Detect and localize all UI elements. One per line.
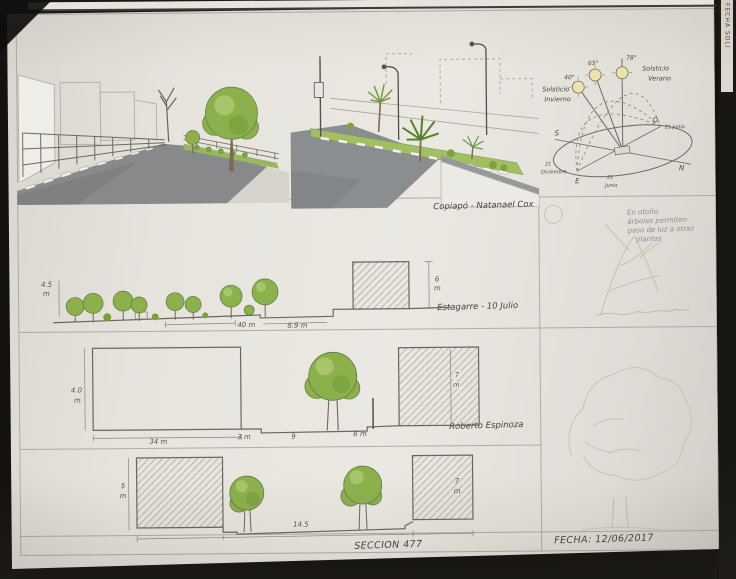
s1-height-right-value: 6	[435, 275, 440, 283]
angle-mid-label: 65°	[588, 60, 599, 67]
s1-road-width: 8.9 m	[287, 322, 307, 330]
s1-trees-width: 40 m	[237, 321, 255, 329]
solsticio-verano-line2: Verano	[648, 74, 671, 82]
building-block-right	[353, 262, 409, 309]
adjacent-sheet-edge: FECHA SOLI	[721, 0, 733, 92]
author-note-copiapo: Copiapó - Natanael Cox	[433, 200, 534, 213]
sun-path-diagram: 40° 65° 78° Solsticio Invierno Solsticio…	[538, 42, 719, 196]
street-section-1: 4.5 m 40 m 8.9 m 6 m	[35, 247, 476, 343]
s1-height-left-unit: m	[43, 290, 50, 298]
s2-block-width: 34 m	[149, 438, 167, 446]
cardinal-west: O	[653, 116, 659, 124]
faint-scribble-line	[595, 309, 689, 316]
s3-height-right-value: 7	[455, 477, 460, 485]
lamp-post-right	[469, 42, 486, 136]
s2-walk-width: 8 m	[353, 430, 367, 438]
building-block-left	[136, 457, 223, 528]
sheet-title-seccion: SECCION 477	[354, 539, 423, 552]
s3-road-width: 14.5	[293, 521, 309, 529]
date-south-line2: Diciembre	[541, 169, 567, 175]
lamp-post-middle	[382, 64, 399, 140]
ground-line	[241, 426, 399, 433]
pencil-sketches-right-column	[539, 195, 718, 537]
faint-bare-tree-sketch	[599, 223, 662, 316]
s2-height-left-unit: m	[74, 397, 81, 405]
s2-height-right-value: 7	[455, 371, 460, 379]
sun-mid-icon	[585, 65, 605, 85]
sheet-date-fecha: FECHA: 12/06/2017	[554, 532, 654, 546]
s2-height-right-unit: m	[453, 381, 460, 389]
cardinal-east: E	[575, 177, 580, 185]
perspective-sketch-median	[290, 39, 539, 209]
adjacent-sheet-vertical-text: FECHA SOLI	[724, 3, 731, 92]
perspective-sketch-street	[16, 43, 292, 205]
solsticio-verano-line1: Solsticio	[642, 64, 669, 72]
sun-path-arcs	[575, 93, 661, 171]
building-block-left	[93, 347, 242, 430]
street-sign	[314, 82, 323, 97]
section3-tree-left	[230, 476, 264, 532]
dashed-building-outlines	[386, 53, 532, 104]
house-footprint	[614, 146, 630, 155]
date-east-line2: Junio	[604, 183, 617, 189]
s2-gap-width: 3 m	[237, 433, 251, 441]
cardinal-north: N	[679, 164, 685, 172]
cardinal-south: S	[555, 129, 560, 137]
s2-height-left-value: 4.0	[71, 386, 83, 394]
section3-tree-right	[341, 466, 383, 530]
s3-height-left-unit: m	[120, 492, 127, 500]
faint-tree-outline-sketch	[568, 367, 692, 530]
building-block-right	[399, 347, 480, 426]
s2-median-width: 9	[291, 433, 296, 441]
date-west-label: 21 Junio	[665, 124, 685, 130]
drawing-sheet: 40° 65° 78° Solsticio Invierno Solsticio…	[0, 0, 736, 579]
ground-line	[223, 522, 413, 535]
section2-dimensions	[85, 345, 452, 441]
angle-summer-label: 78°	[626, 55, 637, 62]
street-section-2: 34 m 3 m 9 8 m 4.0 m 7 m	[60, 337, 481, 449]
date-east-line1: 21	[607, 175, 613, 181]
s1-height-left-value: 4.5	[41, 281, 53, 289]
section2-tree	[305, 352, 361, 430]
date-south-line1: 21	[545, 161, 551, 167]
s3-height-left-value: 5	[121, 482, 126, 490]
lamp-post-left	[314, 56, 324, 136]
sun-summer-icon	[612, 63, 632, 83]
street-section-3: 14.5 5 m 7 m	[106, 449, 477, 544]
solsticio-invierno-line1: Solsticio	[542, 85, 569, 93]
faint-circle-sketch	[544, 205, 562, 223]
s1-height-right-unit: m	[434, 284, 441, 292]
bare-tree	[158, 88, 176, 142]
building-block-right	[412, 455, 473, 520]
s3-height-right-unit: m	[454, 487, 461, 495]
angle-winter-label: 40°	[564, 74, 575, 81]
solsticio-invierno-line2: Invierno	[544, 95, 571, 103]
photo-of-sketch-sheet: 40° 65° 78° Solsticio Invierno Solsticio…	[0, 0, 736, 579]
palm-tree-small	[368, 84, 392, 132]
